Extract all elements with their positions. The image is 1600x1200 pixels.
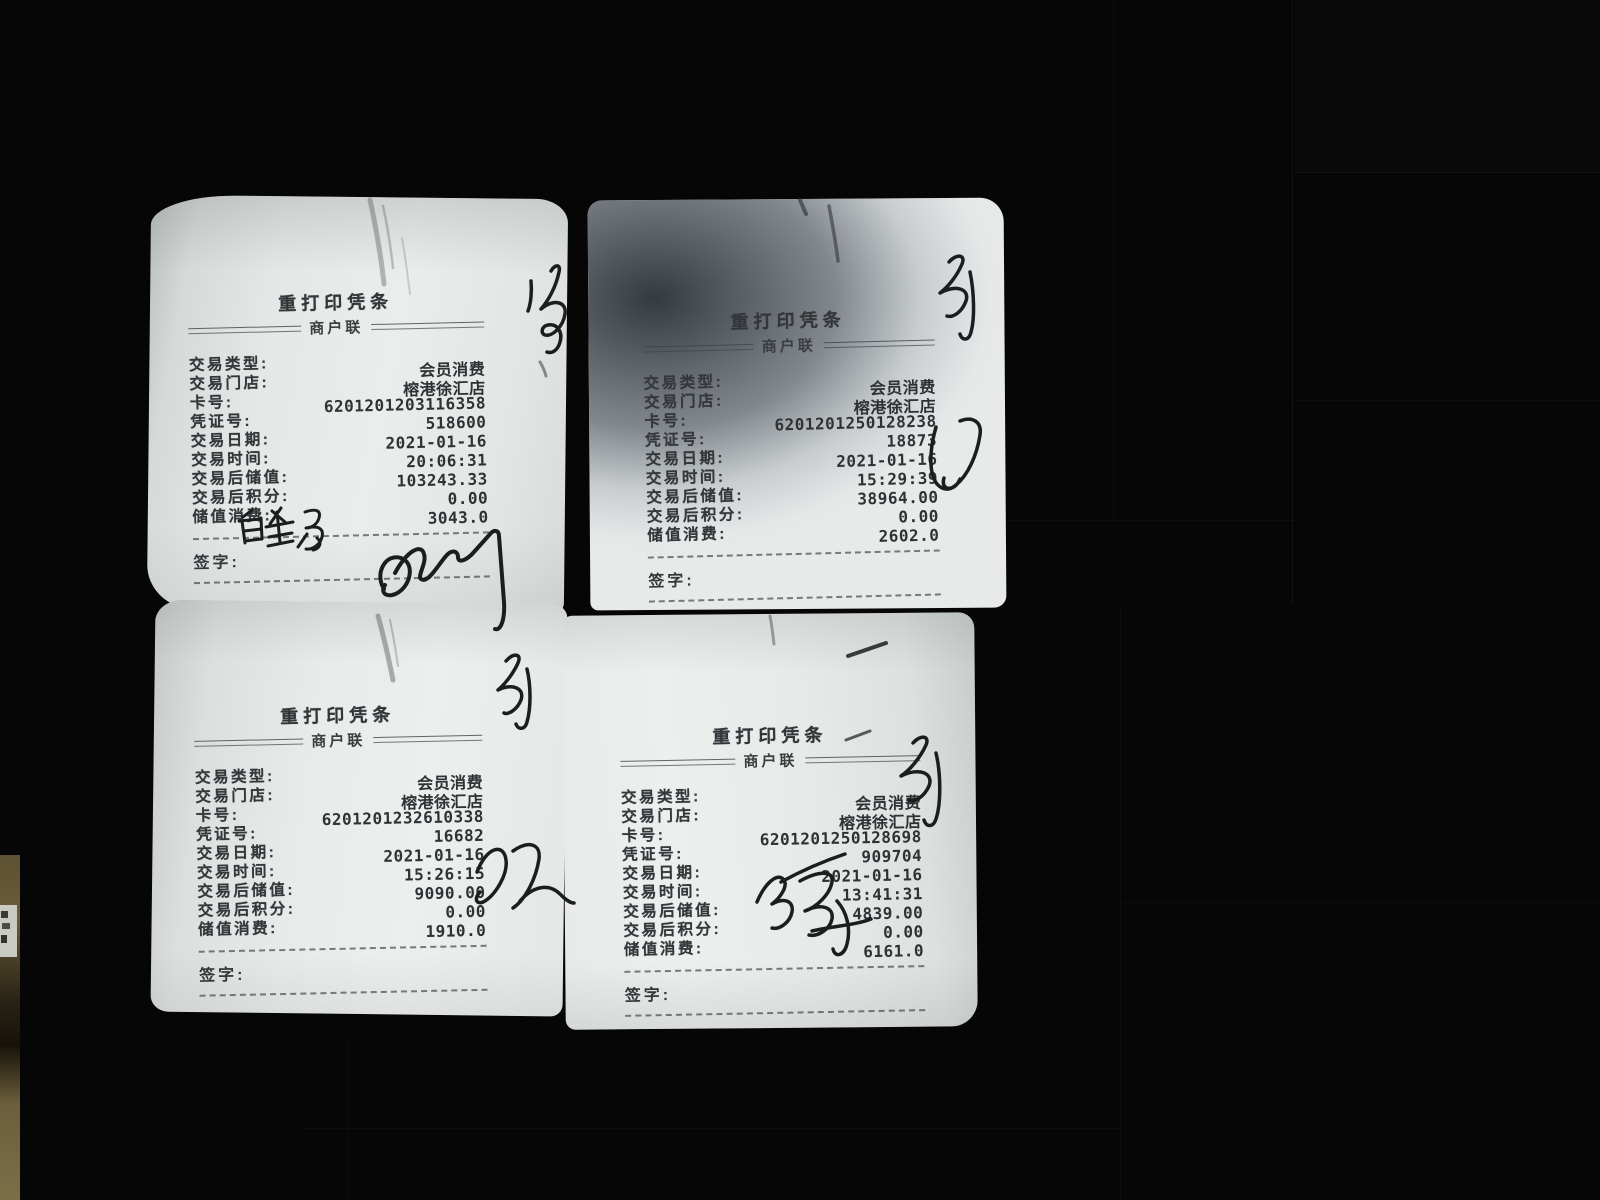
signature-label: 签字: (199, 956, 487, 986)
dashed-rule (649, 593, 941, 602)
dashed-rule (200, 989, 488, 997)
double-rule (643, 343, 754, 352)
signature-label: 签字: (625, 976, 925, 1006)
receipt-title: 重打印凭条 (187, 285, 484, 318)
background-seam (348, 1035, 349, 1200)
dashed-rule (193, 531, 489, 540)
value-consume: 3043.0 (428, 507, 489, 527)
double-rule (620, 758, 735, 766)
value-date: 2021-01-16 (821, 865, 923, 886)
dashed-rule (624, 965, 924, 973)
receipt-subtitle-rule: 商户联 (188, 313, 484, 341)
paper-scrap-marks (0, 905, 17, 957)
value-voucher: 518600 (425, 412, 486, 432)
background-seam (1295, 172, 1600, 173)
receipt-subtitle-rule: 商户联 (194, 727, 482, 754)
value-date: 2021-01-16 (836, 449, 938, 470)
photo-of-receipts: { "title": "重打印凭条", "subtitle": "商户联", "… (0, 0, 1600, 1200)
value-consume: 1910.0 (425, 921, 486, 941)
value-time: 13:41:31 (842, 884, 923, 905)
value-points: 0.00 (883, 922, 924, 942)
value-consume: 2602.0 (878, 525, 939, 545)
double-rule (824, 339, 935, 348)
background-seam (1292, 0, 1293, 605)
background-seam (300, 1128, 1120, 1129)
receipt-title: 重打印凭条 (193, 699, 481, 731)
value-time: 15:29:39 (857, 468, 939, 489)
background-seam (1120, 902, 1600, 903)
label-consume: 储值消费: (198, 916, 278, 940)
double-rule (194, 738, 303, 746)
dashed-rule (199, 945, 487, 953)
dashed-rule (625, 1009, 925, 1017)
receipt-fields: 交易类型:会员消费 交易门店:榕港徐汇店 卡号:6201201250128238… (643, 364, 939, 542)
label-consume: 储值消费: (192, 503, 272, 527)
dashed-rule (648, 549, 940, 558)
receipt-subtitle: 商户联 (309, 316, 363, 338)
double-rule (373, 734, 482, 742)
dashed-rule (194, 575, 490, 584)
paper-scrap (0, 905, 17, 957)
value-balance: 4839.00 (852, 903, 923, 923)
value-points: 0.00 (445, 902, 486, 922)
value-balance: 9090.00 (414, 883, 485, 903)
receipt-subtitle: 商户联 (311, 729, 365, 751)
value-date: 2021-01-16 (385, 431, 487, 452)
receipt-title: 重打印凭条 (620, 719, 920, 751)
label-consume: 储值消费: (624, 936, 704, 960)
value-balance: 38964.00 (857, 487, 939, 508)
receipt-fields: 交易类型:会员消费 交易门店:榕港徐汇店 卡号:6201201250128698… (621, 780, 924, 957)
value-voucher: 909704 (861, 846, 922, 866)
background-panel (1295, 0, 1600, 172)
double-rule (188, 325, 301, 334)
signature-label: 签字: (193, 542, 489, 573)
receipt-top-right: 重打印凭条 商户联 交易类型:会员消费 交易门店:榕港徐汇店 卡号:620120… (588, 198, 1007, 611)
receipt-bottom-right: 重打印凭条 商户联 交易类型:会员消费 交易门店:榕港徐汇店 卡号:620120… (562, 612, 978, 1030)
double-rule (805, 755, 920, 763)
signature-label: 签字: (648, 560, 940, 591)
value-date: 2021-01-16 (383, 845, 485, 866)
background-seam (1292, 400, 1600, 401)
value-balance: 103243.33 (396, 469, 488, 490)
label-consume: 储值消费: (647, 522, 727, 546)
value-points: 0.00 (898, 506, 939, 526)
value-voucher: 18873 (886, 430, 937, 450)
value-time: 20:06:31 (406, 450, 487, 471)
receipt-subtitle: 商户联 (761, 334, 816, 356)
value-time: 15:26:15 (404, 864, 485, 885)
receipt-fields: 交易类型:会员消费 交易门店:榕港徐汇店 卡号:6201201232610338… (195, 760, 487, 937)
receipt-subtitle-rule: 商户联 (620, 747, 920, 774)
value-voucher: 16682 (433, 826, 484, 846)
background-seam (1005, 520, 1295, 521)
receipt-subtitle-rule: 商户联 (643, 332, 935, 360)
receipt-fields: 交易类型:会员消费 交易门店:榕港徐汇店 卡号:6201201203116358… (189, 346, 489, 524)
receipt-subtitle: 商户联 (743, 749, 797, 771)
double-rule (371, 321, 484, 330)
receipt-bottom-left: 重打印凭条 商户联 交易类型:会员消费 交易门店:榕港徐汇店 卡号:620120… (150, 599, 567, 1016)
background-seam (1113, 0, 1114, 520)
value-consume: 6161.0 (863, 941, 924, 961)
receipt-top-left: 重打印凭条 商户联 交易类型:会员消费 交易门店:榕港徐汇店 卡号:620120… (147, 195, 568, 613)
value-points: 0.00 (447, 488, 488, 508)
